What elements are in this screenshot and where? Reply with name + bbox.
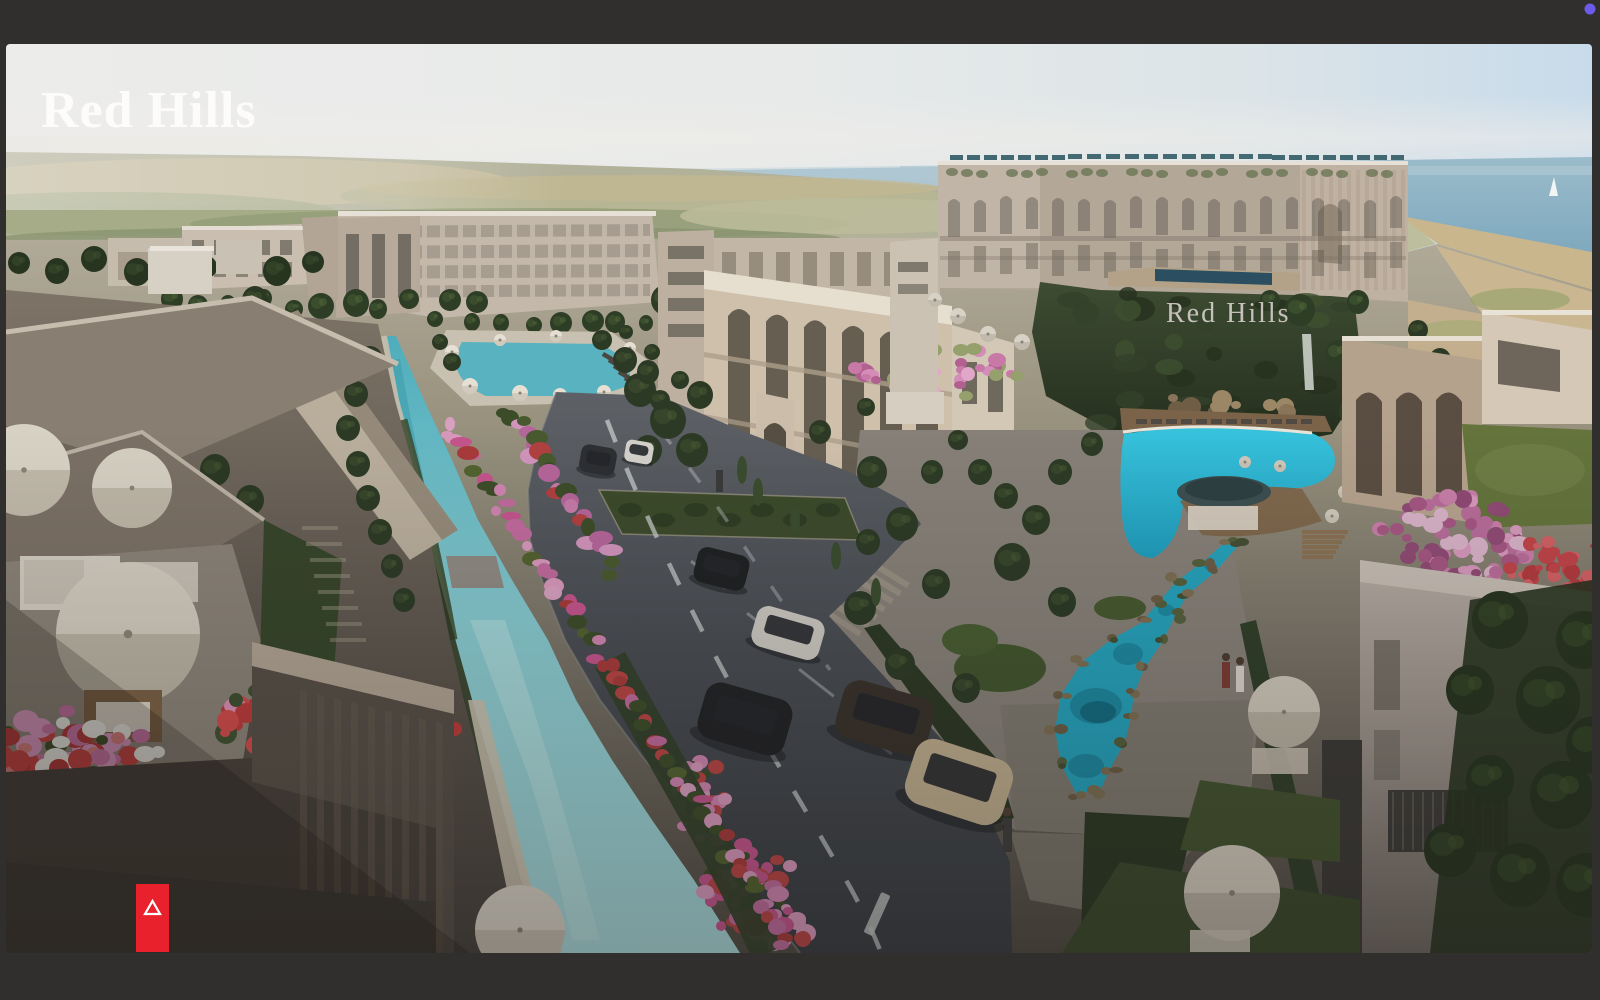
svg-text:Red Hills: Red Hills (41, 82, 257, 139)
